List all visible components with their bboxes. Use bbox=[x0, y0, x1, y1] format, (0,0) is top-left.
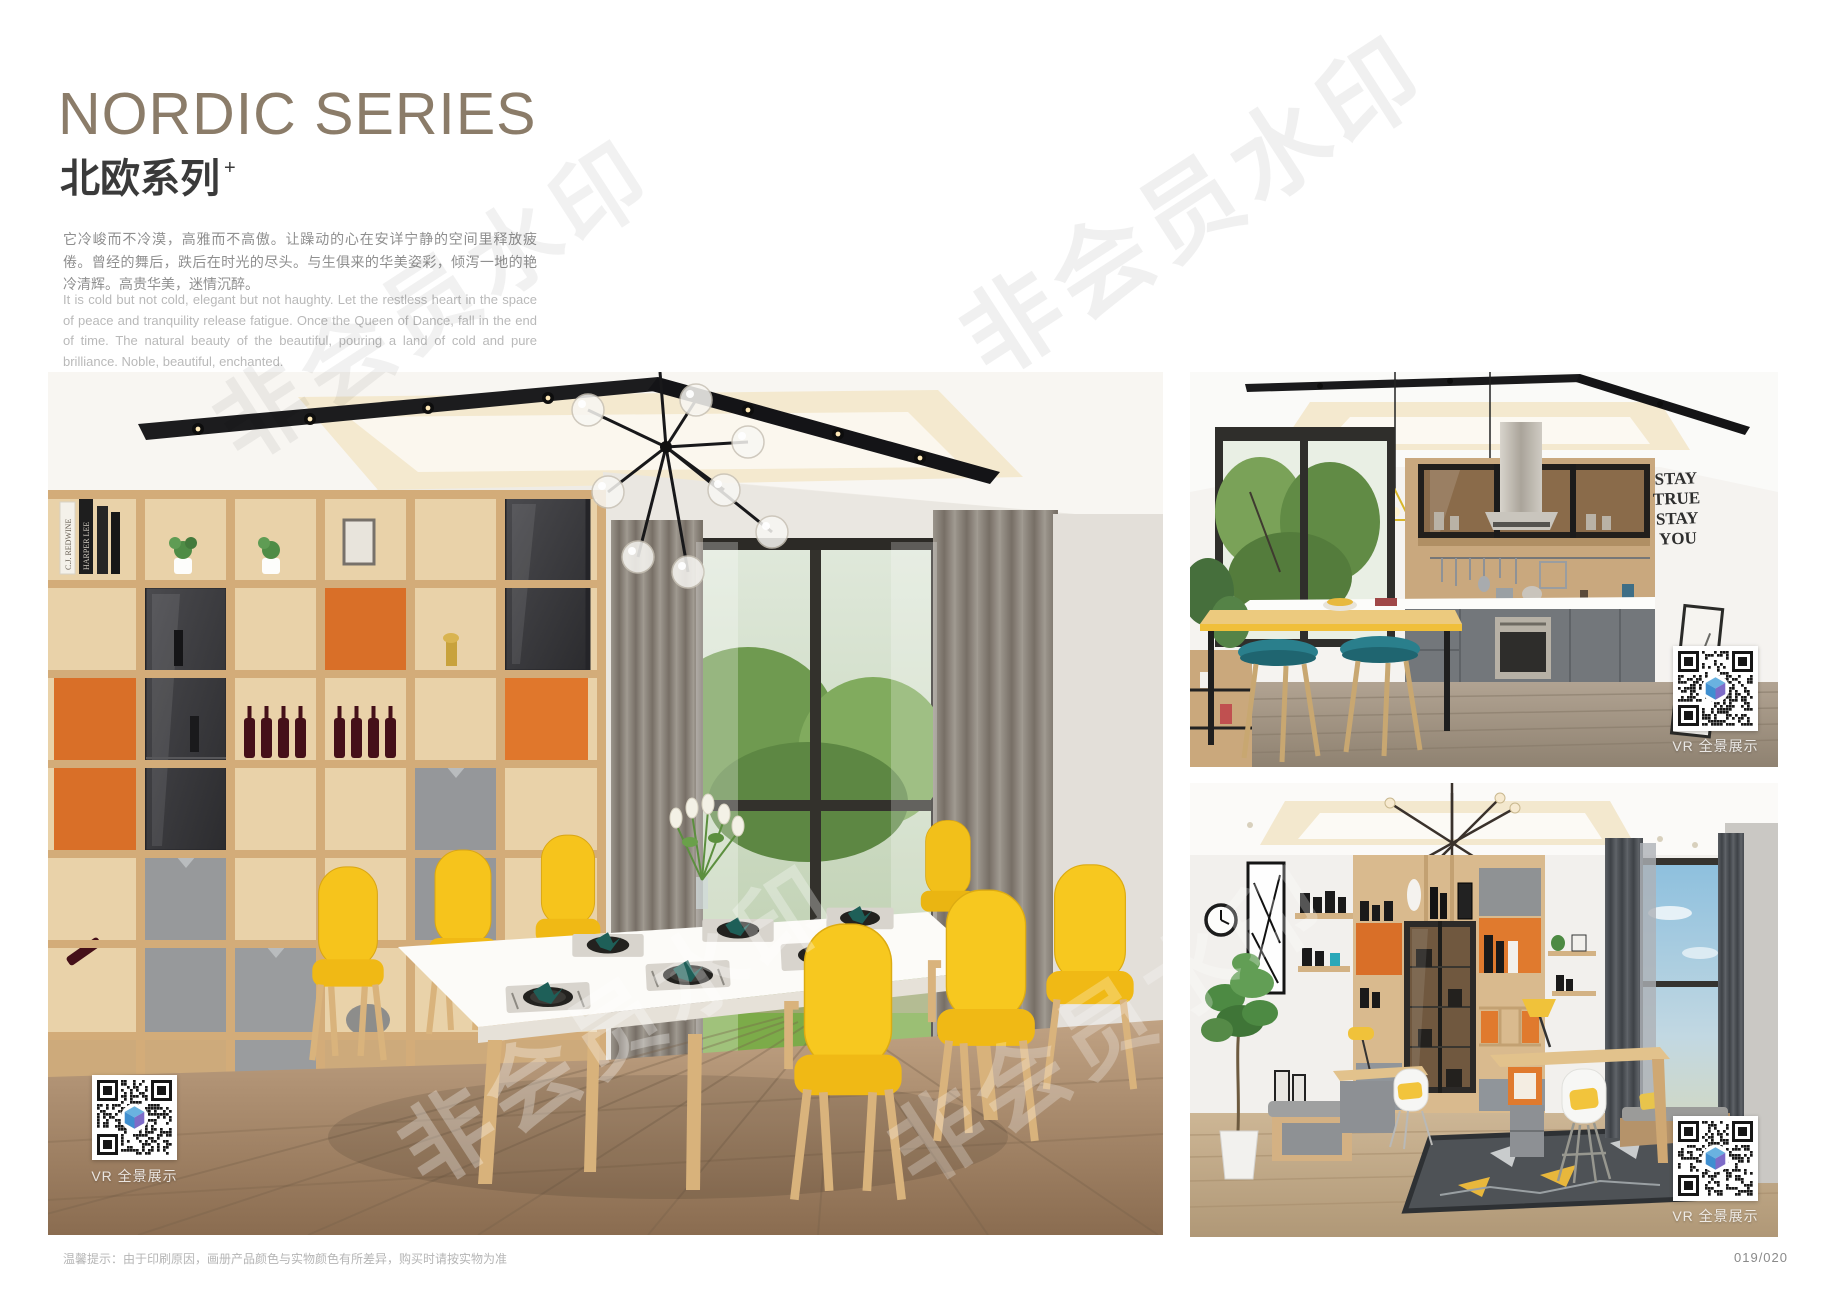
wall-art-line: STAY bbox=[1656, 508, 1699, 528]
qr-code-vr-study bbox=[1673, 1116, 1758, 1201]
watermark: 非会员水印 bbox=[929, 0, 1451, 404]
series-title-zh-text: 北欧系列 bbox=[60, 157, 220, 201]
series-title-zh: 北欧系列+ bbox=[60, 146, 236, 204]
qr-code-vr-kitchen bbox=[1673, 646, 1758, 731]
page-number: 019/020 bbox=[1734, 1250, 1788, 1265]
qr-code-vr-dining bbox=[92, 1075, 177, 1160]
book-spine-text: C.J. REDWINE bbox=[64, 519, 73, 570]
description-chinese: 它冷峻而不冷漠，高雅而不高傲。让躁动的心在安详宁静的空间里释放疲倦。曾经的舞后，… bbox=[63, 228, 537, 296]
photo-dining-room: % bbox=[48, 372, 1163, 1235]
qr-code-canvas bbox=[1678, 1121, 1753, 1196]
qr-code-canvas bbox=[97, 1080, 172, 1155]
description-english: It is cold but not cold, elegant but not… bbox=[63, 290, 537, 372]
wall-art-line: STAY bbox=[1654, 468, 1697, 488]
vr-panorama-label: VR 全景展示 bbox=[1668, 736, 1763, 756]
wall-art-line: TRUE bbox=[1653, 488, 1701, 509]
photo-study-room: VR 全景展示 bbox=[1190, 783, 1778, 1237]
dining-room-scene: % bbox=[48, 372, 1163, 1235]
wall-art-line: YOU bbox=[1659, 528, 1697, 548]
series-title-superscript: + bbox=[224, 157, 236, 179]
qr-code-canvas bbox=[1678, 651, 1753, 726]
print-disclaimer: 温馨提示：由于印刷原因，画册产品颜色与实物颜色有所差异，购买时请按实物为准 bbox=[63, 1250, 507, 1267]
book-spine-text: HARPER LEE bbox=[82, 522, 91, 570]
catalog-page: NORDIC SERIES 北欧系列+ 它冷峻而不冷漠，高雅而不高傲。让躁动的心… bbox=[0, 0, 1836, 1307]
photo-kitchen: STAY TRUE STAY YOU bbox=[1190, 372, 1778, 767]
dining-shelving-unit: C.J. REDWINE HARPER LEE bbox=[48, 490, 606, 1137]
wall-clock bbox=[1206, 905, 1236, 935]
study-ceiling bbox=[1190, 783, 1778, 855]
series-title-en: NORDIC SERIES bbox=[58, 80, 537, 148]
vr-panorama-label: VR 全景展示 bbox=[87, 1166, 182, 1186]
vr-panorama-label: VR 全景展示 bbox=[1668, 1206, 1763, 1226]
wall-art-stay-true: STAY TRUE STAY YOU bbox=[1652, 468, 1702, 549]
